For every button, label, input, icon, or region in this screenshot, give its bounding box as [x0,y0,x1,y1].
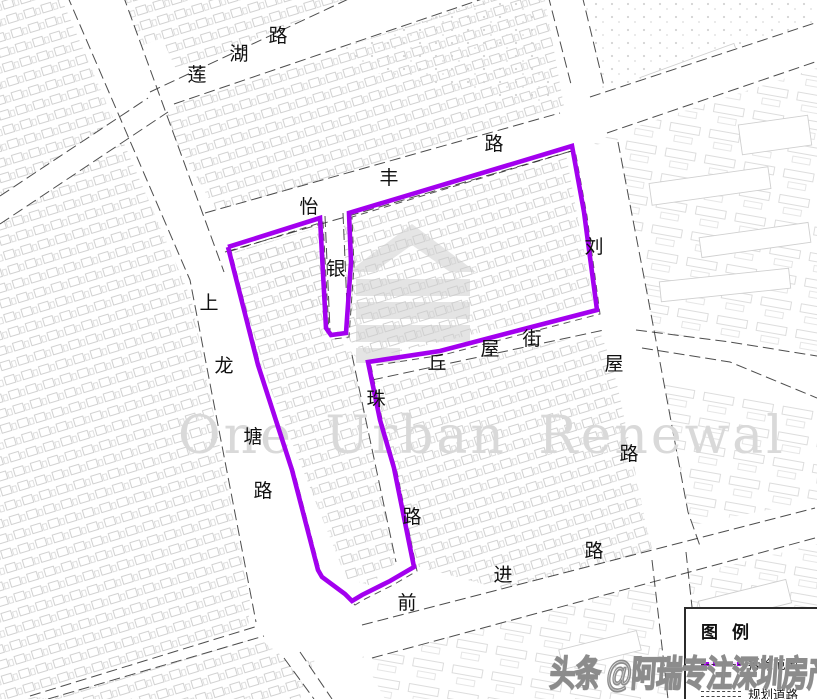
road-label-qiuwu-street: 屋 [480,339,499,360]
road-label-zhu-road: 路 [402,506,421,528]
road-label-liuwu-road: 路 [619,443,638,465]
road-label-liuwu-road: 屋 [604,354,623,375]
road-label-yifeng-road: 路 [484,133,503,155]
road-label-lianhu-road: 莲 [187,64,206,86]
road-label-shanglongtang-road: 路 [253,480,272,502]
planning-map-canvas: One Urban Renewal 莲湖路怡丰路上龙塘路银刘屋路丘屋街珠路前进路… [0,0,817,699]
road-label-liuwu-road: 刘 [584,236,603,258]
road-label-shanglongtang-road: 塘 [243,426,262,448]
watermark-one-urban-renewal: One Urban Renewal [178,406,786,466]
road-label-shanglongtang-road: 上 [199,292,218,314]
road-label-shanglongtang-road: 龙 [214,355,233,377]
map-image: One Urban Renewal 莲湖路怡丰路上龙塘路银刘屋路丘屋街珠路前进路 [0,0,817,699]
road-label-qiuwu-street: 街 [522,328,541,350]
road-label-yifeng-road: 丰 [379,167,398,189]
road-label-qianjin-road: 路 [584,540,603,562]
road-label-qianjin-road: 前 [397,592,416,614]
legend-title: 图例 [701,618,817,643]
road-label-qiuwu-street: 丘 [427,352,446,374]
road-label-zhu-road: 珠 [366,388,385,410]
road-label-qianjin-road: 进 [493,564,512,586]
watermark-toutiao-account: 头条 @阿瑞专注深圳房产 [548,645,817,697]
road-label-lianhu-road: 湖 [229,43,248,65]
road-label-lianhu-road: 路 [268,25,287,47]
road-label-yifeng-road: 怡 [299,196,318,218]
road-label-yin-street: 银 [326,258,345,280]
